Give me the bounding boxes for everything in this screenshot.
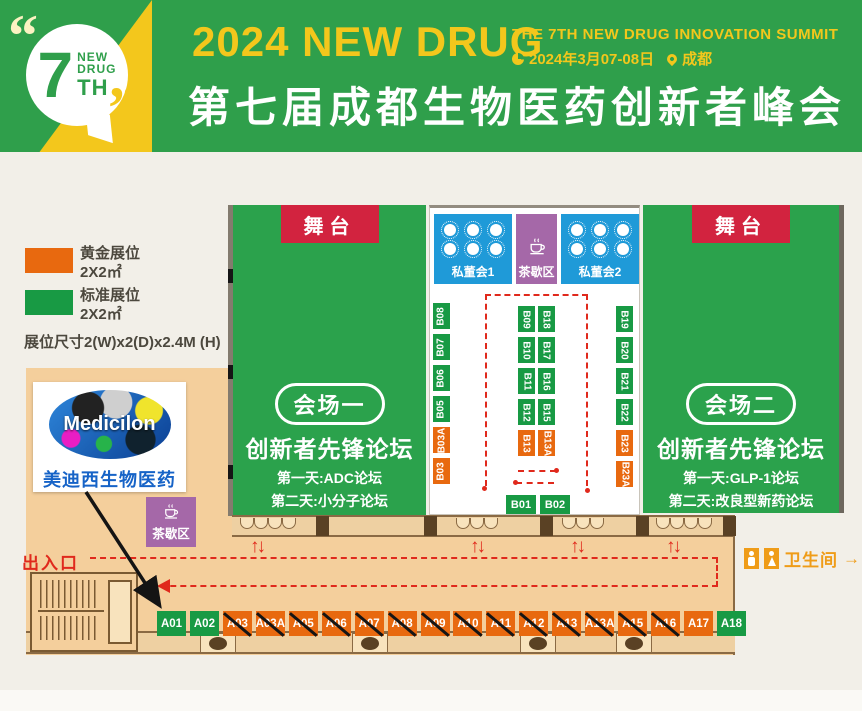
round-table-icon [594, 224, 606, 236]
restroom-sign: 卫生间 → [744, 546, 861, 571]
booth: B08 [433, 303, 450, 329]
booth-label: A18 [721, 618, 742, 630]
booth-label: B18 [541, 310, 552, 328]
aisle-arrow-right [518, 470, 556, 472]
booth-label: B20 [619, 341, 630, 359]
exhibit-hall-1: 舞台 会场一 创新者先锋论坛 第一天:ADC论坛 第二天:小分子论坛 [233, 205, 426, 515]
tea-break-area-top: 茶歇区 [516, 214, 557, 284]
round-table-icon [571, 224, 583, 236]
round-tables [444, 224, 502, 255]
door-flow-arrows: ↑↓ [470, 536, 483, 558]
pillar [424, 516, 437, 536]
tea-break-side-label: 茶歇区 [152, 523, 190, 542]
booth: B22 [616, 399, 633, 425]
booth-island: B09B10B11B12B13 B18B17B16B15B13A [518, 306, 555, 456]
booth-label: B09 [521, 310, 532, 328]
pillar [625, 637, 643, 650]
booth-label: B22 [619, 403, 630, 421]
booth-label: B15 [541, 403, 552, 421]
medicilon-logo: Medicilon [49, 390, 171, 459]
door-flow-arrows: ↑↓ [250, 536, 263, 558]
booth-label: B13 [521, 434, 532, 452]
booth: A06 [322, 611, 351, 636]
booth-column-island-right: B18B17B16B15B13A [538, 306, 555, 456]
event-logo: “ 7 NEW DRUG TH ” [0, 0, 152, 152]
booth: A12 [519, 611, 548, 636]
pillar [529, 637, 547, 650]
booth: B13 [518, 430, 535, 456]
booth: B10 [518, 337, 535, 363]
booth: A16 [651, 611, 680, 636]
booth: B06 [433, 365, 450, 391]
booth: A03 [223, 611, 252, 636]
man-icon [744, 548, 759, 569]
booth-row-b-front: B01B02 [506, 495, 570, 514]
round-table-icon [444, 224, 456, 236]
booth-label: B08 [436, 307, 447, 325]
page-bottom-margin [0, 690, 862, 711]
round-table-icon [490, 224, 502, 236]
private-board-2-label: 私董会2 [579, 263, 622, 280]
wall-niche [352, 633, 388, 653]
event-title-cn: 第七届成都生物医药创新者峰会 [188, 74, 846, 135]
booth-label: B17 [541, 341, 552, 359]
booth: B11 [518, 368, 535, 394]
legend-gold-label: 黄金展位 2X2㎡ [80, 245, 140, 283]
booth: B12 [518, 399, 535, 425]
pillar [723, 516, 736, 536]
booth-label: B12 [521, 403, 532, 421]
sponsor-card: Medicilon 美迪西生物医药 [33, 382, 186, 492]
legend-standard-title: 标准展位 [80, 287, 140, 306]
booth: B02 [540, 495, 570, 514]
pillar [636, 516, 649, 536]
pillar [209, 637, 227, 650]
stage-badge: 舞台 [281, 205, 379, 243]
restroom-arrow: → [843, 549, 861, 569]
booth: A17 [684, 611, 713, 636]
round-tables [571, 224, 629, 255]
event-subtitle-en: THE 7TH NEW DRUG INNOVATION SUMMIT [512, 26, 838, 43]
booth: A05 [289, 611, 318, 636]
hall1-name-pill: 会场一 [274, 383, 384, 425]
hall2-forum-title: 创新者先锋论坛 [643, 430, 839, 464]
restroom-label: 卫生间 [784, 546, 838, 571]
booth-label: B10 [521, 341, 532, 359]
meeting-tables-row: 私董会1 茶歇区 私董会2 [434, 214, 639, 284]
door-arcs [562, 518, 604, 529]
aisle-arrow-left [516, 482, 554, 484]
booth: A03A [256, 611, 285, 636]
booth-column-b-right: B19B20B21B22B23B23A [616, 306, 633, 487]
booth-column-island-left: B09B10B11B12B13 [518, 306, 535, 456]
event-city: 成都 [682, 48, 712, 69]
tea-break-top-label: 茶歇区 [518, 263, 554, 280]
booth: A18 [717, 611, 746, 636]
booth: B21 [616, 368, 633, 394]
route-arrowhead-icon [157, 579, 170, 593]
booth: A13A [585, 611, 614, 636]
booth-label: A17 [688, 618, 709, 630]
quote-close-icon: ” [108, 78, 138, 138]
wall-niche [520, 633, 556, 653]
legend-gold-size: 2X2㎡ [80, 264, 140, 283]
booth-label: B05 [436, 400, 447, 418]
booth-label: B19 [619, 310, 630, 328]
path-dot [585, 488, 590, 493]
booth-label: B03A [436, 427, 447, 453]
door-arcs [656, 518, 712, 529]
header-banner: “ 7 NEW DRUG TH ” 2024 NEW DRUG THE 7TH … [0, 0, 862, 152]
booth: B13A [538, 430, 555, 456]
hall1-forum-title: 创新者先锋论坛 [233, 430, 426, 464]
booth: B16 [538, 368, 555, 394]
wall-niche [616, 633, 652, 653]
round-table-icon [617, 224, 629, 236]
booth: B01 [506, 495, 536, 514]
stairwell [30, 572, 138, 652]
event-meta: 2024年3月07-08日 成都 [512, 48, 838, 69]
woman-icon [764, 548, 779, 569]
hall2-day2: 第二天:改良型新药论坛 [643, 491, 839, 511]
entrance-label: 出入口 [22, 549, 79, 574]
booth-label: B23A [619, 461, 630, 487]
clock-icon [512, 53, 524, 65]
exhibit-hall-2: 舞台 会场二 创新者先锋论坛 第一天:GLP-1论坛 第二天:改良型新药论坛 [643, 205, 839, 513]
booth: B03 [433, 458, 450, 484]
booth: A10 [453, 611, 482, 636]
legend-gold-title: 黄金展位 [80, 245, 140, 264]
booth: B07 [433, 334, 450, 360]
round-table-icon [490, 243, 502, 255]
booth: B05 [433, 396, 450, 422]
booth-row-a: A01A02A03A03AA05A06A07A08A09A10A11A12A13… [157, 611, 746, 636]
hall2-day1: 第一天:GLP-1论坛 [643, 468, 839, 488]
booth-dimension-note: 展位尺寸2(W)x2(D)x2.4M (H) [24, 331, 221, 352]
stair-room [108, 580, 132, 644]
booth: A07 [355, 611, 384, 636]
booth: B03A [433, 427, 450, 453]
pillar [361, 637, 379, 650]
right-wall [839, 205, 844, 513]
stairs-treads [40, 580, 100, 608]
stage-badge: 舞台 [692, 205, 790, 243]
booth: A13 [552, 611, 581, 636]
booth: B23 [616, 430, 633, 456]
stairs-landing [38, 610, 104, 612]
door-arcs [240, 518, 296, 529]
round-table-icon [594, 243, 606, 255]
booth-label: B07 [436, 338, 447, 356]
booth: B17 [538, 337, 555, 363]
door-arcs [456, 518, 498, 529]
tea-break-area-side: 茶歇区 [146, 497, 196, 547]
booth: B15 [538, 399, 555, 425]
booth: A01 [157, 611, 186, 636]
wall-niche [200, 633, 236, 653]
booth-label: B02 [545, 499, 565, 511]
booth: B23A [616, 461, 633, 487]
pillar [316, 516, 329, 536]
hall1-day1: 第一天:ADC论坛 [233, 468, 426, 488]
booth-label: A02 [194, 618, 215, 630]
booth-label: B16 [541, 372, 552, 390]
stairs-treads [40, 616, 100, 640]
floorplan-poster: “ 7 NEW DRUG TH ” 2024 NEW DRUG THE 7TH … [0, 0, 862, 711]
coffee-cup-icon [162, 503, 180, 521]
logo-number: 7 [38, 43, 74, 107]
round-table-icon [467, 224, 479, 236]
booth-label: B03 [436, 462, 447, 480]
hall2-name-pill: 会场二 [686, 383, 796, 425]
booth-label: B21 [619, 372, 630, 390]
round-table-icon [467, 243, 479, 255]
booth-label: B11 [521, 372, 532, 390]
location-pin-icon [665, 51, 679, 65]
booth: A15 [618, 611, 647, 636]
booth-label: B13A [541, 430, 552, 456]
door-wall [232, 515, 735, 537]
legend-gold-swatch [25, 248, 73, 273]
booth: B09 [518, 306, 535, 332]
booth-label: B06 [436, 369, 447, 387]
legend-standard-size: 2X2㎡ [80, 306, 140, 325]
event-title-en: 2024 NEW DRUG [192, 18, 543, 66]
door-flow-arrows: ↑↓ [666, 536, 679, 558]
sponsor-name: 美迪西生物医药 [43, 466, 176, 492]
booth: A08 [388, 611, 417, 636]
visitor-route-dashed [90, 557, 718, 587]
booth-label: A01 [161, 618, 182, 630]
booth: B19 [616, 306, 633, 332]
hall1-day2: 第二天:小分子论坛 [233, 491, 426, 511]
pillar [540, 516, 553, 536]
round-table-icon [617, 243, 629, 255]
path-dot [482, 486, 487, 491]
booth-column-b-left: B08B07B06B05B03AB03 [433, 303, 450, 484]
quote-open-icon: “ [8, 6, 38, 66]
booth-label: B01 [511, 499, 531, 511]
door-flow-arrows: ↑↓ [570, 536, 583, 558]
round-table-icon [444, 243, 456, 255]
booth: A02 [190, 611, 219, 636]
private-board-1-label: 私董会1 [452, 263, 495, 280]
booth: A11 [486, 611, 515, 636]
medicilon-logo-text: Medicilon [63, 413, 155, 436]
event-subtitle-block: THE 7TH NEW DRUG INNOVATION SUMMIT 2024年… [512, 26, 838, 69]
round-table-icon [571, 243, 583, 255]
private-board-room-1: 私董会1 [434, 214, 512, 284]
booth: B18 [538, 306, 555, 332]
legend-standard-swatch [25, 290, 73, 315]
private-board-room-2: 私董会2 [561, 214, 639, 284]
booth-label: B23 [619, 434, 630, 452]
legend-standard-label: 标准展位 2X2㎡ [80, 287, 140, 325]
booth: A09 [421, 611, 450, 636]
center-exhibit-area: 私董会1 茶歇区 私董会2 [429, 205, 640, 515]
coffee-cup-icon [527, 237, 547, 257]
booth: B20 [616, 337, 633, 363]
event-date: 2024年3月07-08日 [529, 48, 654, 69]
